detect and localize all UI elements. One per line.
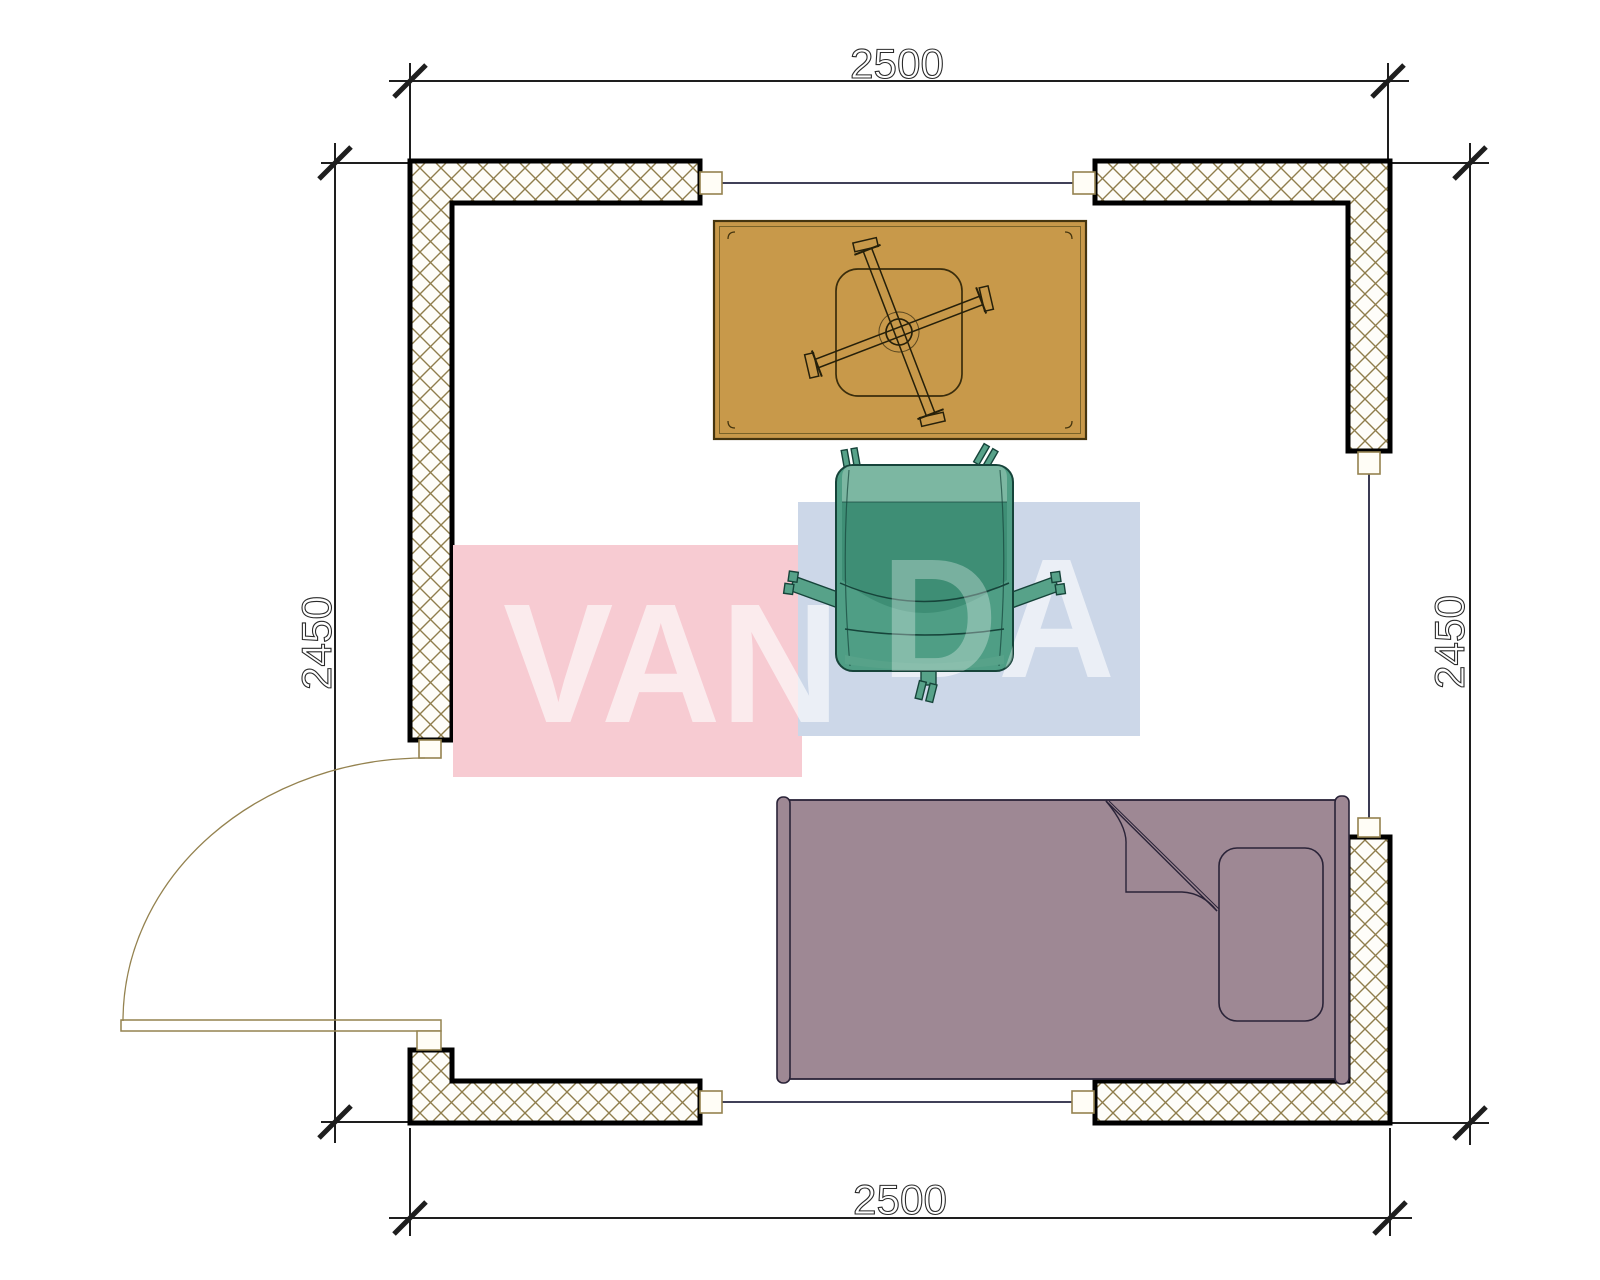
svg-text:2450: 2450 [1426,595,1473,689]
svg-text:2450: 2450 [293,596,340,690]
svg-text:2500: 2500 [853,1176,947,1223]
svg-text:2500: 2500 [850,40,944,87]
svg-text:VAN: VAN [503,569,840,759]
